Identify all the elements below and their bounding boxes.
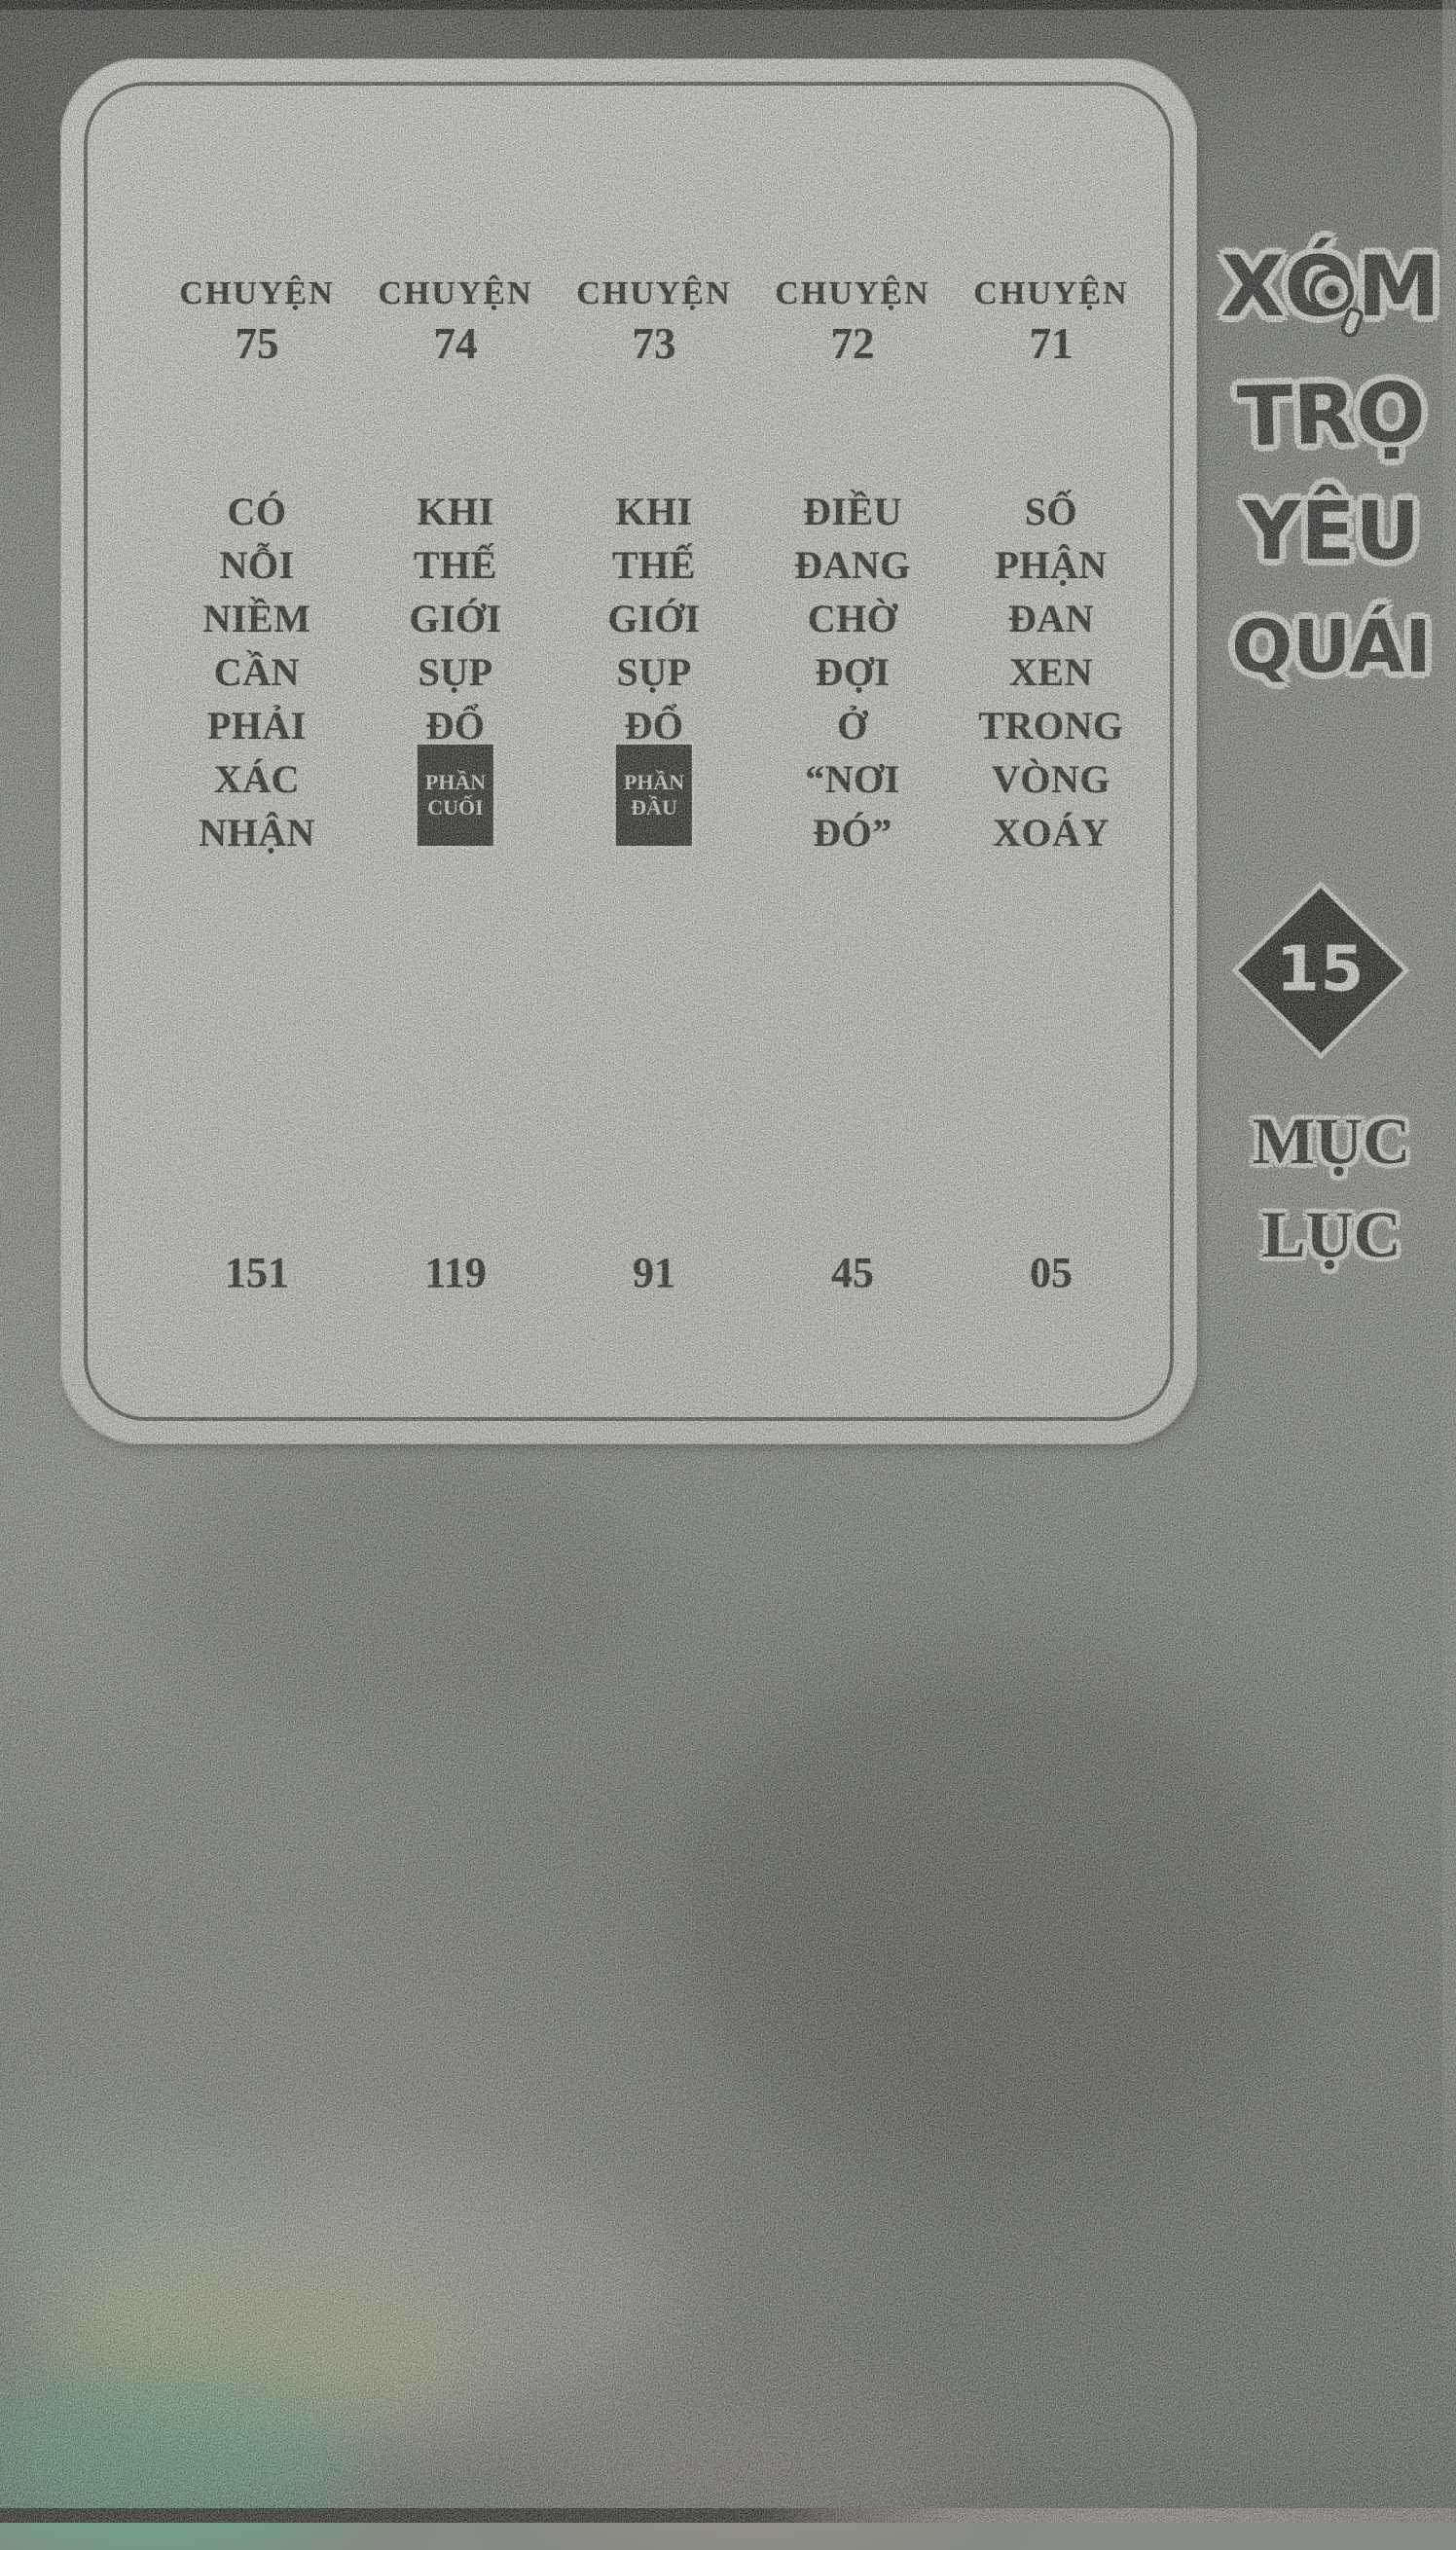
chapter-number: 71	[952, 319, 1150, 368]
chapter-title: KHI THẾ GIỚI SỤP ĐỔ	[555, 485, 753, 752]
toc-panel: CHUYỆN 75 CÓ NỖI NIỀM CẦN PHẢI XÁC NHẬN …	[60, 58, 1197, 1444]
chapter-page-number: 05	[952, 1248, 1150, 1297]
chapter-header: CHUYỆN 73	[555, 274, 753, 368]
chapter-label: CHUYỆN	[356, 274, 555, 313]
chapter-label: CHUYỆN	[158, 274, 356, 313]
scan-shadow-blob	[146, 1440, 652, 1732]
section-title: MỤC LỤC	[1207, 1094, 1456, 1281]
chapter-number: 72	[753, 319, 952, 368]
chapter-page-number: 151	[158, 1248, 356, 1297]
sidebar: XÓM TRỌ YÊU QUÁI 15 MỤC LỤC	[1207, 0, 1456, 2523]
chapter-title: SỐ PHẬN ĐAN XEN TRONG VÒNG XOÁY	[952, 485, 1150, 859]
part-badge: PHẦN ĐẦU	[616, 745, 692, 846]
chapter-number: 75	[158, 319, 356, 368]
part-badge: PHẦN CUỐI	[418, 745, 493, 846]
scan-edge-top	[0, 0, 1456, 10]
scan-edge-right	[1442, 0, 1456, 2523]
scan-edge-bottom	[0, 2508, 1456, 2523]
chapter-label: CHUYỆN	[555, 274, 753, 313]
chapter-page-number: 119	[356, 1248, 555, 1297]
volume-number: 15	[1276, 934, 1365, 1006]
chapter-column-71: CHUYỆN 71 SỐ PHẬN ĐAN XEN TRONG VÒNG XOÁ…	[952, 58, 1150, 1444]
logo-word-quai: QUÁI	[1207, 611, 1456, 683]
monster-eye-icon	[1309, 270, 1354, 314]
chapter-number: 73	[555, 319, 753, 368]
chapter-header: CHUYỆN 71	[952, 274, 1150, 368]
chapter-column-74: CHUYỆN 74 KHI THẾ GIỚI SỤP ĐỔ PHẦN CUỐI …	[356, 58, 555, 1444]
logo-word-yeu: YÊU	[1207, 492, 1456, 572]
chapter-header: CHUYỆN 74	[356, 274, 555, 368]
chapter-columns: CHUYỆN 75 CÓ NỖI NIỀM CẦN PHẢI XÁC NHẬN …	[158, 58, 1150, 1444]
chapter-column-72: CHUYỆN 72 ĐIỀU ĐANG CHỜ ĐỢI Ở “NƠI ĐÓ” 4…	[753, 58, 952, 1444]
chapter-title: CÓ NỖI NIỀM CẦN PHẢI XÁC NHẬN	[158, 485, 356, 859]
chapter-label: CHUYỆN	[753, 274, 952, 313]
logo-word-tro: TRỌ	[1206, 371, 1456, 459]
chapter-title: ĐIỀU ĐANG CHỜ ĐỢI Ở “NƠI ĐÓ”	[753, 485, 952, 859]
chapter-page-number: 91	[555, 1248, 753, 1297]
chapter-page-number: 45	[753, 1248, 952, 1297]
chapter-number: 74	[356, 319, 555, 368]
volume-badge: 15	[1238, 888, 1403, 1053]
chapter-header: CHUYỆN 75	[158, 274, 356, 368]
chapter-column-75: CHUYỆN 75 CÓ NỖI NIỀM CẦN PHẢI XÁC NHẬN …	[158, 58, 356, 1444]
chapter-column-73: CHUYỆN 73 KHI THẾ GIỚI SỤP ĐỔ PHẦN ĐẦU 9…	[555, 58, 753, 1444]
chapter-label: CHUYỆN	[952, 274, 1150, 313]
eye-pupil	[1325, 285, 1339, 300]
chapter-title: KHI THẾ GIỚI SỤP ĐỔ	[356, 485, 555, 752]
chapter-header: CHUYỆN 72	[753, 274, 952, 368]
